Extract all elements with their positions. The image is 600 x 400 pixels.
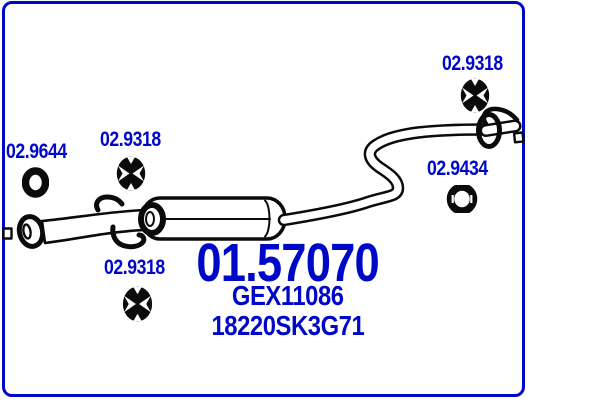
callout-part-number: 02.9318 — [442, 53, 503, 74]
callout-part-number: 02.9644 — [6, 141, 67, 162]
pipe-clamp-icon — [446, 185, 478, 213]
callout-part-number: 02.9318 — [100, 129, 161, 150]
inlet-flange — [17, 214, 46, 248]
oem-reference-1: GEX11086 — [232, 282, 344, 310]
exhaust-catalog-image: 02.9644 02.9318 02.9318 02.9434 02.9318 … — [0, 0, 600, 400]
silencer-inlet-ring — [141, 205, 163, 233]
oem-reference-row: 18220SK3G71 — [140, 312, 436, 340]
callout-part-number: 02.9434 — [427, 158, 488, 179]
rubber-hanger-icon — [116, 156, 146, 191]
left-square-marker — [4, 229, 12, 239]
rubber-hanger-icon — [460, 78, 490, 113]
hanger-rod-top — [97, 197, 122, 210]
oem-reference-row: GEX11086 — [140, 282, 436, 310]
front-pipe — [42, 210, 144, 243]
oem-reference-2: 18220SK3G71 — [212, 312, 365, 340]
right-square-marker — [514, 132, 523, 142]
gasket-ring-icon — [22, 167, 49, 198]
